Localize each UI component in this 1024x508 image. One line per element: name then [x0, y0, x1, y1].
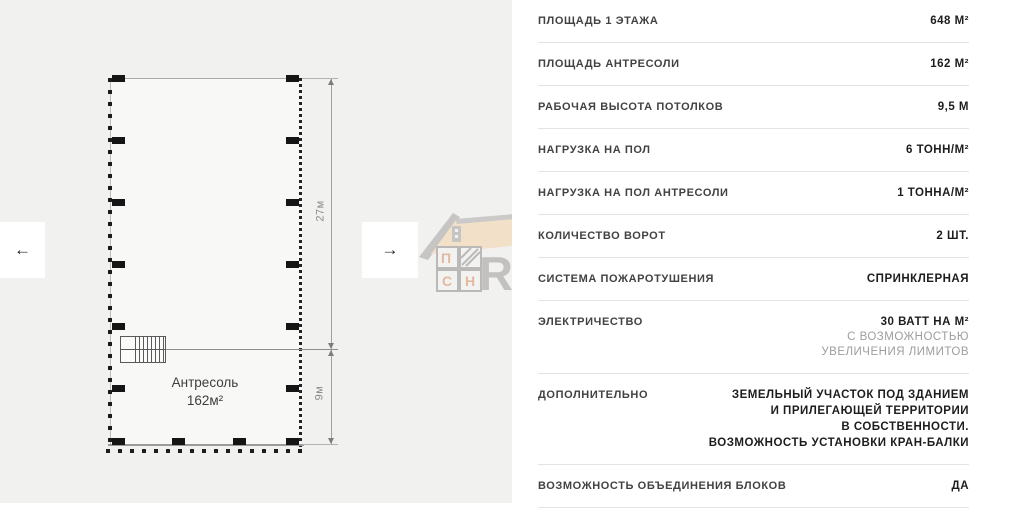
spec-value: 30 ВАТТ НА М²С ВОЗМОЖНОСТЬЮУВЕЛИЧЕНИЯ ЛИ… — [821, 314, 969, 360]
specs-panel: ПЛОЩАДЬ 1 ЭТАЖА648 М²ПЛОЩАДЬ АНТРЕСОЛИ16… — [512, 0, 1024, 503]
spec-value-line: 9,5 М — [938, 99, 969, 115]
spec-label: ПЛОЩАДЬ 1 ЭТАЖА — [538, 13, 658, 28]
spec-row: ЭЛЕКТРИЧЕСТВО30 ВАТТ НА М²С ВОЗМОЖНОСТЬЮ… — [538, 301, 969, 374]
spec-value: 162 М² — [930, 56, 969, 72]
column-marker — [112, 438, 125, 445]
dimension-label-9m: 9м — [313, 386, 325, 401]
stairs-symbol — [120, 336, 166, 363]
spec-row: ВОЗМОЖНОСТЬ ОБЪЕДИНЕНИЯ БЛОКОВДА — [538, 465, 969, 508]
specs-table: ПЛОЩАДЬ 1 ЭТАЖА648 М²ПЛОЩАДЬ АНТРЕСОЛИ16… — [538, 0, 969, 508]
spec-label: КОЛИЧЕСТВО ВОРОТ — [538, 228, 666, 243]
column-marker — [112, 75, 125, 82]
spec-value-line: 2 ШТ. — [936, 228, 969, 244]
spec-value: СПРИНКЛЕРНАЯ — [867, 271, 969, 287]
spec-label: СИСТЕМА ПОЖАРОТУШЕНИЯ — [538, 271, 714, 286]
spec-label: ЭЛЕКТРИЧЕСТВО — [538, 314, 643, 329]
column-marker — [112, 385, 125, 392]
dim-arrow-down-bottom — [328, 438, 334, 444]
spec-value-line: 30 ВАТТ НА М² — [821, 314, 969, 330]
spec-note-line: С ВОЗМОЖНОСТЬЮ — [821, 330, 969, 345]
spec-label: ПЛОЩАДЬ АНТРЕСОЛИ — [538, 56, 680, 71]
column-marker — [172, 438, 185, 445]
dim-arrow-up-mezz — [328, 350, 334, 356]
spec-value: ДА — [952, 478, 970, 494]
spec-value-line: 648 М² — [930, 13, 969, 29]
spec-value-line: 1 ТОННА/М² — [897, 185, 969, 201]
column-marker — [286, 137, 299, 144]
column-marker — [112, 137, 125, 144]
spec-value-line: ДА — [952, 478, 970, 494]
spec-value-line: 6 ТОНН/М² — [906, 142, 969, 158]
spec-row: ДОПОЛНИТЕЛЬНОЗЕМЕЛЬНЫЙ УЧАСТОК ПОД ЗДАНИ… — [538, 374, 969, 465]
prev-slide-button[interactable]: ← — [0, 222, 45, 278]
column-marker — [286, 323, 299, 330]
next-slide-button[interactable]: → — [362, 222, 418, 278]
column-marker — [286, 385, 299, 392]
column-marker — [112, 261, 125, 268]
spec-label: ДОПОЛНИТЕЛЬНО — [538, 387, 648, 402]
spec-value-line: 162 М² — [930, 56, 969, 72]
spec-label: ВОЗМОЖНОСТЬ ОБЪЕДИНЕНИЯ БЛОКОВ — [538, 478, 786, 493]
spec-label: НАГРУЗКА НА ПОЛ АНТРЕСОЛИ — [538, 185, 729, 200]
dimension-line — [331, 78, 332, 445]
wall-bottom-dashes — [106, 449, 306, 453]
floorplan-panel: 27м 9м Антресоль 162м² ← → — [0, 0, 512, 503]
spec-value: 2 ШТ. — [936, 228, 969, 244]
spec-value: 9,5 М — [938, 99, 969, 115]
spec-value-line: ЗЕМЕЛЬНЫЙ УЧАСТОК ПОД ЗДАНИЕМ — [709, 387, 969, 403]
spec-row: ПЛОЩАДЬ АНТРЕСОЛИ162 М² — [538, 43, 969, 86]
spec-row: КОЛИЧЕСТВО ВОРОТ2 ШТ. — [538, 215, 969, 258]
mezzanine-boundary-line — [166, 349, 338, 350]
spec-value-line: В СОБСТВЕННОСТИ. — [709, 419, 969, 435]
spec-row: НАГРУЗКА НА ПОЛ6 ТОНН/М² — [538, 129, 969, 172]
dim-arrow-up-top — [328, 79, 334, 85]
column-marker — [112, 323, 125, 330]
stairs-stringer — [121, 349, 167, 350]
spec-value: 6 ТОНН/М² — [906, 142, 969, 158]
column-marker — [286, 261, 299, 268]
column-marker — [112, 199, 125, 206]
spec-value-line: СПРИНКЛЕРНАЯ — [867, 271, 969, 287]
mezzanine-caption: Антресоль 162м² — [145, 374, 265, 410]
spec-row: НАГРУЗКА НА ПОЛ АНТРЕСОЛИ1 ТОННА/М² — [538, 172, 969, 215]
dim-arrow-down-mezz — [328, 343, 334, 349]
spec-label: НАГРУЗКА НА ПОЛ — [538, 142, 651, 157]
spec-value: 1 ТОННА/М² — [897, 185, 969, 201]
spec-value: ЗЕМЕЛЬНЫЙ УЧАСТОК ПОД ЗДАНИЕМИ ПРИЛЕГАЮЩ… — [709, 387, 969, 451]
spec-note-line: УВЕЛИЧЕНИЯ ЛИМИТОВ — [821, 345, 969, 360]
column-marker — [233, 438, 246, 445]
spec-row: РАБОЧАЯ ВЫСОТА ПОТОЛКОВ9,5 М — [538, 86, 969, 129]
wall-bottom — [108, 444, 304, 446]
arrow-left-icon: ← — [14, 240, 31, 260]
column-marker — [286, 75, 299, 82]
spec-row: ПЛОЩАДЬ 1 ЭТАЖА648 М² — [538, 0, 969, 43]
mezzanine-label: Антресоль — [145, 374, 265, 392]
arrow-right-icon: → — [382, 240, 399, 260]
spec-value: 648 М² — [930, 13, 969, 29]
dimension-ext-bottom — [302, 444, 338, 445]
spec-value-line: ВОЗМОЖНОСТЬ УСТАНОВКИ КРАН-БАЛКИ — [709, 435, 969, 451]
spec-row: СИСТЕМА ПОЖАРОТУШЕНИЯСПРИНКЛЕРНАЯ — [538, 258, 969, 301]
wall-right-dashes — [299, 78, 302, 448]
dimension-label-27m: 27м — [315, 200, 327, 221]
column-marker — [286, 199, 299, 206]
spec-label: РАБОЧАЯ ВЫСОТА ПОТОЛКОВ — [538, 99, 723, 114]
column-marker — [286, 438, 299, 445]
mezzanine-area: 162м² — [145, 392, 265, 410]
spec-value-line: И ПРИЛЕГАЮЩЕЙ ТЕРРИТОРИИ — [709, 403, 969, 419]
